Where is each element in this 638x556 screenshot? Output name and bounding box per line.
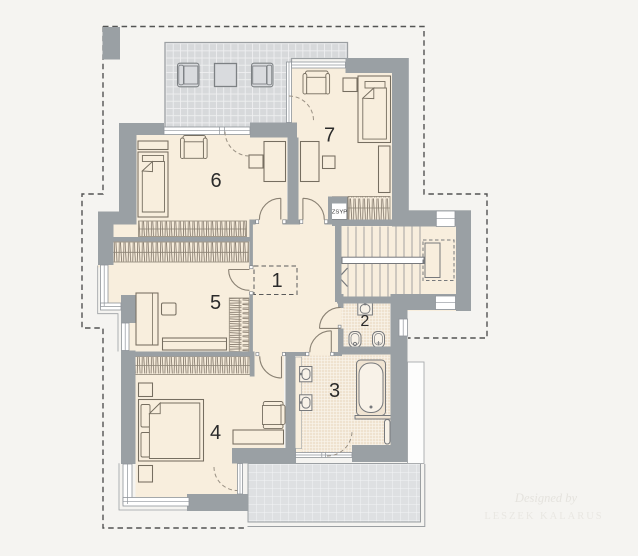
svg-text:4: 4: [210, 422, 221, 444]
svg-text:3: 3: [329, 380, 340, 402]
svg-text:LESZEK KALARUS: LESZEK KALARUS: [484, 511, 603, 522]
svg-text:1: 1: [271, 270, 282, 292]
svg-text:6: 6: [210, 170, 221, 192]
svg-text:5: 5: [210, 292, 221, 314]
svg-text:Designed by: Designed by: [514, 491, 578, 505]
svg-text:2: 2: [360, 313, 369, 330]
svg-text:7: 7: [324, 125, 335, 147]
svg-text:ZSYP: ZSYP: [332, 210, 347, 216]
